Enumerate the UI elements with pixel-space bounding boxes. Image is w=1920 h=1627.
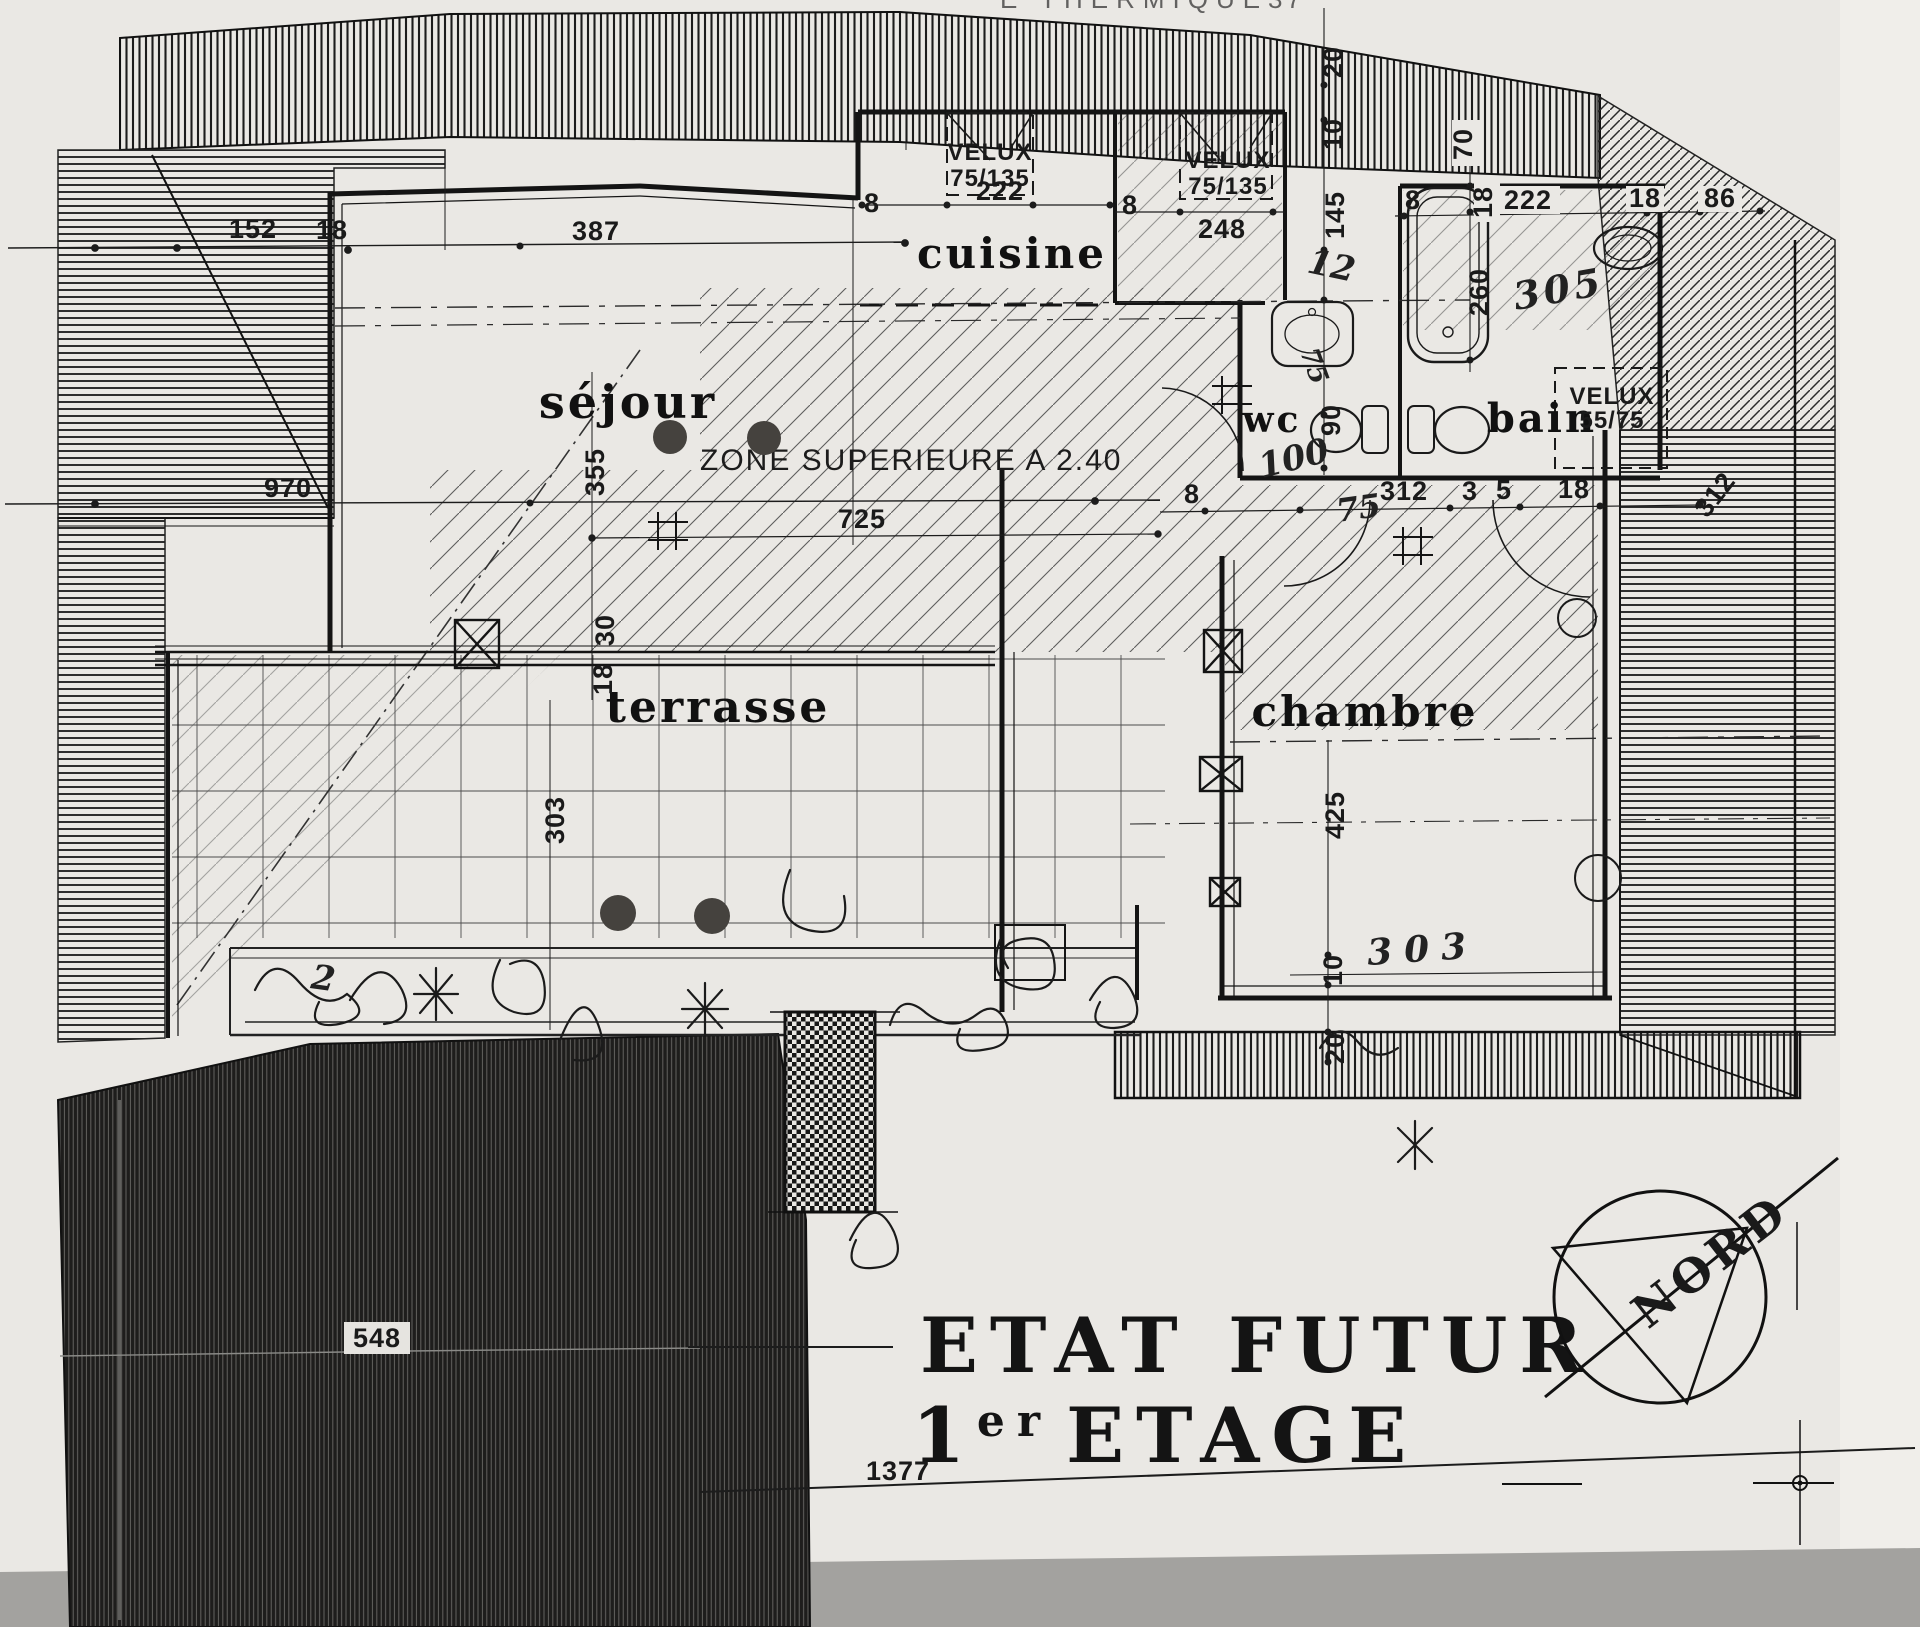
dim-86: 86 — [1704, 183, 1736, 213]
room-label-chambre: chambre — [1252, 687, 1479, 736]
plan-canvas: séjour cuisine terrasse chambre bain wc … — [0, 0, 1920, 1627]
dim-8-chain: 8 — [1184, 479, 1200, 509]
room-label-terrasse: terrasse — [606, 682, 831, 733]
dim-355: 355 — [580, 448, 610, 496]
dim-725: 725 — [838, 504, 886, 534]
velux1-label: VELUX — [947, 139, 1032, 166]
dim-3-chain: 3 — [1462, 476, 1478, 506]
plant-asterisk-2 — [682, 983, 728, 1035]
roof-east-band — [1620, 430, 1835, 1035]
dim-548: 548 — [353, 1323, 401, 1353]
dim-20-top: 20 — [1318, 46, 1348, 78]
dim-30-wall: 30 — [590, 614, 620, 646]
punch-hole — [653, 420, 687, 454]
velux2-width-dim: 248 — [1198, 214, 1246, 244]
dim-970: 970 — [264, 473, 312, 503]
dark-roof-dim: 548 — [344, 1322, 410, 1354]
punch-hole — [600, 895, 636, 931]
floor-plan-scan: séjour cuisine terrasse chambre bain wc … — [0, 0, 1920, 1627]
room-label-cuisine: cuisine — [917, 229, 1107, 278]
top-edge-cut-text: E THERMIQUE 37 — [1000, 0, 1305, 14]
hand-303: 303 — [1366, 924, 1480, 974]
dim-8-cuisine-left: 8 — [864, 188, 880, 218]
title-line1: ETAT FUTUR — [920, 1301, 1594, 1390]
dim-1377: 1377 — [866, 1456, 930, 1486]
dim-312-chain: 312 — [1380, 476, 1428, 506]
dim-18-bain: 18 — [1629, 183, 1661, 213]
punch-hole — [694, 898, 730, 934]
roof-dark-seam — [118, 1100, 121, 1620]
roof-left-strip — [58, 518, 165, 1042]
room-label-sejour: séjour — [539, 375, 717, 429]
dim-425: 425 — [1320, 791, 1350, 839]
room-label-wc: wc — [1242, 399, 1302, 441]
dim-222-bain: 222 — [1504, 185, 1552, 215]
dim-5-chain: 5 — [1496, 475, 1512, 505]
dim-152: 152 — [229, 214, 277, 244]
plant-asterisk-1 — [414, 968, 458, 1020]
dim-10-chambre: 10 — [1318, 954, 1348, 986]
dim-387: 387 — [572, 216, 620, 246]
roof-south-band — [1115, 1032, 1800, 1098]
dim-70: 70 — [1448, 128, 1478, 160]
dim-20-chambre: 20 — [1320, 1032, 1350, 1064]
velux3-label: VELUX — [1569, 383, 1654, 410]
dim-18-bain-vert: 18 — [1468, 186, 1498, 218]
velux1-width-dim: 222 — [976, 176, 1024, 206]
top-edge-text: E THERMIQUE — [1000, 0, 1268, 14]
dim-8-bain: 8 — [1405, 185, 1421, 215]
roof-dark-lower-left — [58, 1034, 810, 1627]
dim-8-cuisine-right: 8 — [1122, 190, 1138, 220]
dim-10-top: 10 — [1318, 118, 1348, 150]
dim-18-wall: 18 — [588, 663, 618, 695]
velux2-size: 75/135 — [1188, 173, 1267, 200]
velux2-label: VELUX — [1185, 147, 1270, 174]
dim-18-left: 18 — [316, 215, 348, 245]
hand-75: 75 — [1334, 486, 1383, 530]
dim-260: 260 — [1464, 268, 1494, 316]
dim-303-terrace: 303 — [540, 796, 570, 844]
paper-right-margin — [1840, 0, 1920, 1627]
punch-hole — [747, 421, 781, 455]
dim-18-chain: 18 — [1558, 474, 1590, 504]
top-edge-number: 37 — [1268, 0, 1305, 14]
dim-145: 145 — [1320, 191, 1350, 239]
velux3-size: 55/75 — [1579, 407, 1644, 434]
